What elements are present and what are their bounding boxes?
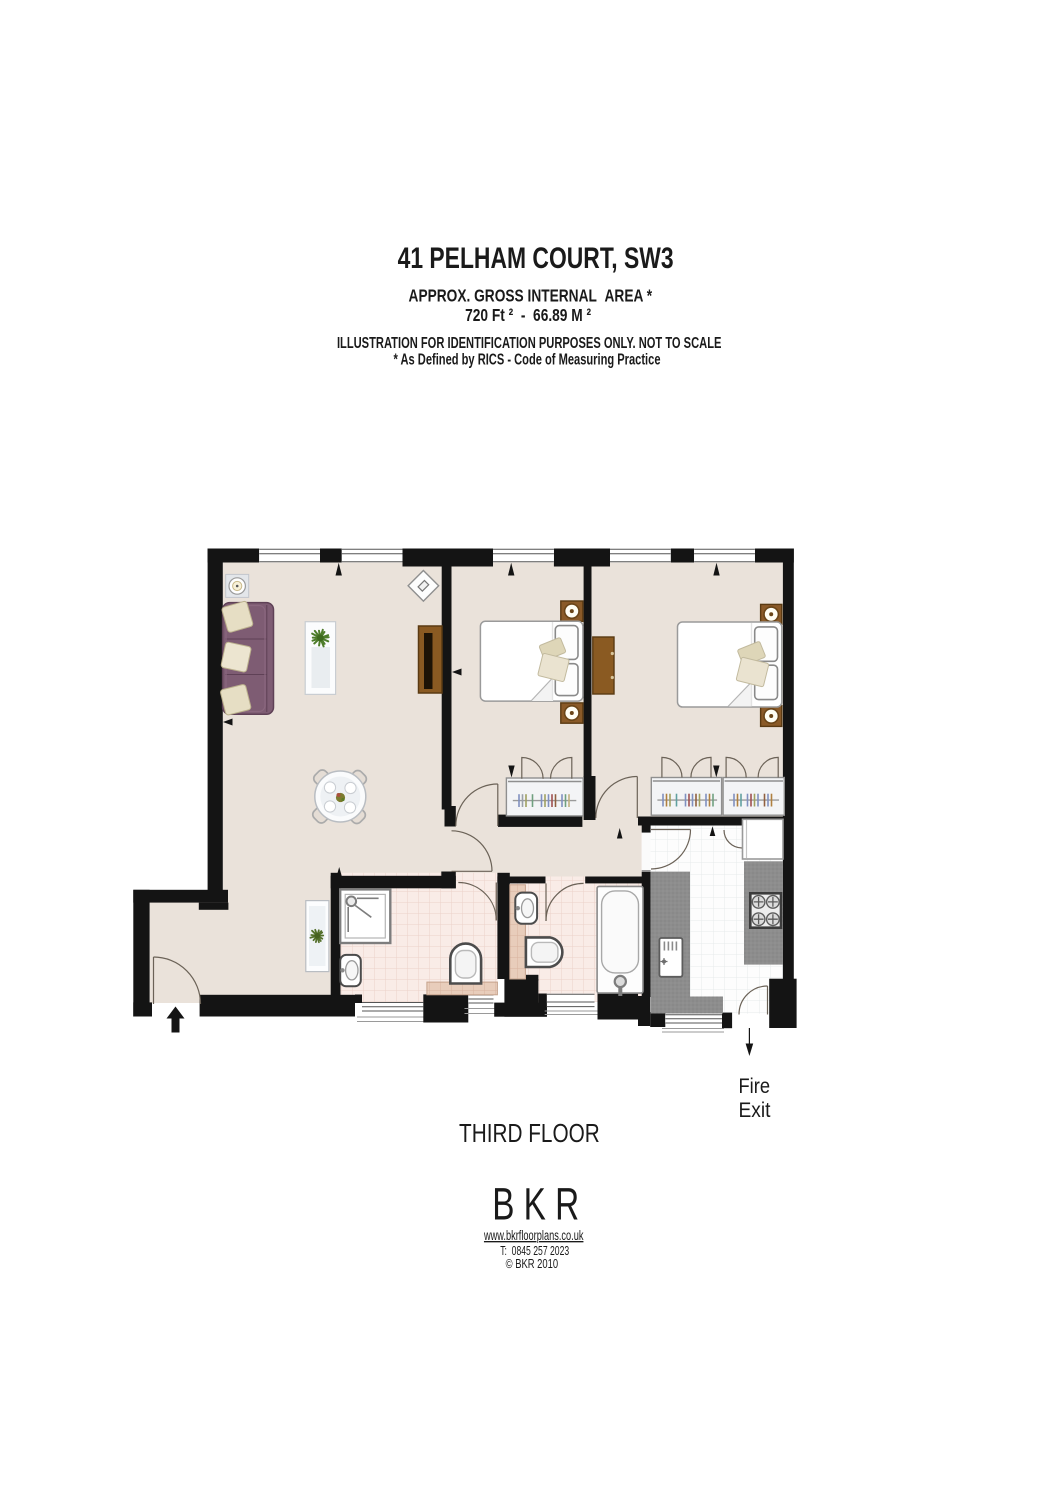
svg-text:ILLUSTRATION FOR IDENTIFICATIO: ILLUSTRATION FOR IDENTIFICATION PURPOSES… bbox=[337, 335, 722, 352]
svg-text:B K R: B K R bbox=[492, 1178, 579, 1229]
svg-text:www.bkrfloorplans.co.uk: www.bkrfloorplans.co.uk bbox=[483, 1228, 583, 1243]
svg-text:* As Defined by RICS - Code of: * As Defined by RICS - Code of Measuring… bbox=[394, 352, 661, 369]
svg-text:© BKR 2010: © BKR 2010 bbox=[506, 1257, 559, 1271]
svg-text:Exit: Exit bbox=[739, 1099, 771, 1122]
svg-text:Fire: Fire bbox=[739, 1075, 771, 1098]
svg-text:APPROX. GROSS INTERNAL AREA *: APPROX. GROSS INTERNAL AREA * bbox=[409, 286, 653, 306]
svg-text:T: 0845 257 2023: T: 0845 257 2023 bbox=[500, 1243, 569, 1258]
svg-text:THIRD FLOOR: THIRD FLOOR bbox=[459, 1120, 600, 1148]
svg-text:720 Ft ² - 66.89 M ²: 720 Ft ² - 66.89 M ² bbox=[465, 305, 591, 325]
svg-text:41 PELHAM COURT, SW3: 41 PELHAM COURT, SW3 bbox=[398, 242, 674, 275]
